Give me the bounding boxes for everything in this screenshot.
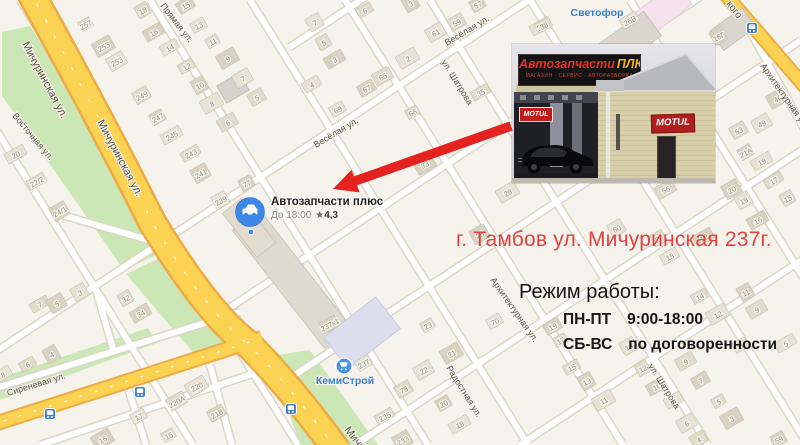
bus-stop-icon[interactable] bbox=[286, 404, 297, 415]
motul-wall-sign: MOTUL bbox=[651, 113, 695, 133]
poi-label-autoparts[interactable]: Автозапчасти плюс До 18:00★4,3 bbox=[271, 196, 383, 222]
door bbox=[657, 136, 676, 183]
address-text: г. Тамбов ул. Мичуринская 237г. bbox=[456, 228, 772, 252]
bus-stop-icon[interactable] bbox=[135, 387, 146, 398]
shopping-cart-icon[interactable] bbox=[336, 358, 352, 374]
rating-value: 4,3 bbox=[324, 210, 338, 221]
house-number: 257 bbox=[78, 18, 93, 32]
storefront-photo: MOTUL АвтозапчастиПЛЮС МАГАЗИН · СЕРВИС … bbox=[512, 44, 715, 183]
map-screenshot: 2572552532492472452432412391816141210861… bbox=[0, 0, 800, 445]
pavement bbox=[512, 178, 715, 183]
star-icon: ★ bbox=[315, 210, 324, 221]
bus-stop-icon[interactable] bbox=[45, 409, 56, 420]
hours-title: Режим работы: bbox=[519, 281, 777, 304]
bus-stop-icon[interactable] bbox=[747, 23, 758, 34]
poi-title[interactable]: Автозапчасти плюс bbox=[271, 196, 383, 209]
poi-status: До 18:00★4,3 bbox=[271, 210, 383, 222]
working-hours: Режим работы: ПН-ПТ9:00-18:00 СБ-ВСпо до… bbox=[519, 281, 777, 354]
hours-weekend: СБ-ВСпо договоренности bbox=[563, 336, 777, 354]
hours-weekdays: ПН-ПТ9:00-18:00 bbox=[563, 311, 777, 329]
poi-label[interactable]: Светофор bbox=[571, 7, 624, 19]
poi-label[interactable]: КемиСтрой bbox=[316, 375, 374, 387]
